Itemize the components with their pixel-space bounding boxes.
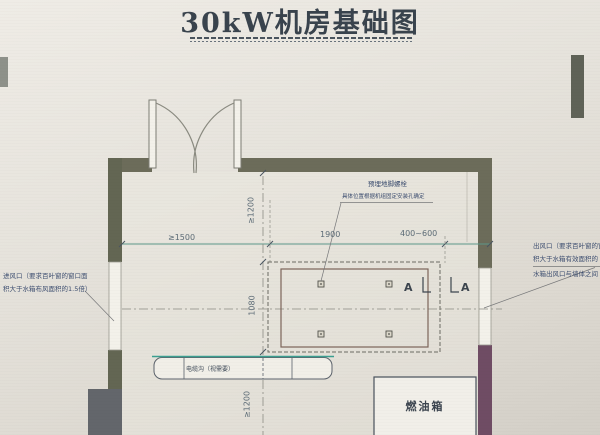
scan-artifact-left	[0, 57, 8, 87]
door-swing-arc-left	[156, 103, 196, 173]
section-label-a-right: A	[461, 281, 470, 294]
dim-depth-top: ≥1200	[247, 189, 256, 233]
air-inlet-opening	[109, 262, 121, 350]
wall-right-upper	[478, 158, 492, 268]
drawing-sheet: 30kW机房基础图	[0, 0, 600, 435]
wall-corner-pier	[88, 389, 122, 435]
wall-top-right	[238, 158, 492, 172]
anchor-bolt	[386, 281, 392, 287]
note-anchor-bolt-line1: 预埋地脚螺栓	[368, 178, 407, 191]
door-leaf-left	[149, 100, 156, 168]
note-air-outlet-line3: 水箱出风口与墙体之间	[533, 268, 598, 281]
anchor-bolt	[386, 331, 392, 337]
plan-linework: A A	[0, 0, 600, 435]
anchor-bolt	[318, 331, 324, 337]
note-air-outlet-line2: 积大于水箱有效面积的	[533, 253, 598, 266]
scan-artifact-right	[571, 55, 584, 118]
cable-trench	[154, 358, 332, 380]
door-leaf-right	[234, 100, 241, 168]
dim-width-left: ≥1500	[168, 233, 195, 242]
fuel-tank-label: 燃油箱	[374, 398, 476, 414]
anchor-bolt	[318, 281, 324, 287]
dim-width-center: 1900	[320, 230, 340, 239]
dim-depth-center: 1080	[248, 284, 257, 328]
air-outlet-opening	[479, 268, 491, 345]
dim-depth-bottom: ≥1200	[243, 383, 252, 427]
section-label-a-left: A	[404, 281, 413, 294]
note-air-inlet-line2: 积大于水箱布风面积的1.5倍）	[3, 283, 91, 296]
note-anchor-bolt-line2: 具体位置根据机组固定安装孔确定	[342, 192, 425, 200]
wall-right-lower-accent	[478, 345, 492, 435]
note-air-inlet: 进风口（要求百叶窗的窗口面 积大于水箱布风面积的1.5倍）	[3, 270, 91, 296]
dim-width-right: 400~600	[400, 229, 437, 238]
cable-trench-label: 电缆沟（视需要）	[186, 364, 234, 373]
note-air-inlet-line1: 进风口（要求百叶窗的窗口面	[3, 270, 91, 283]
note-air-outlet-line1: 出风口（要求百叶窗的窗	[533, 240, 600, 253]
door-swing-arc-right	[194, 103, 234, 173]
